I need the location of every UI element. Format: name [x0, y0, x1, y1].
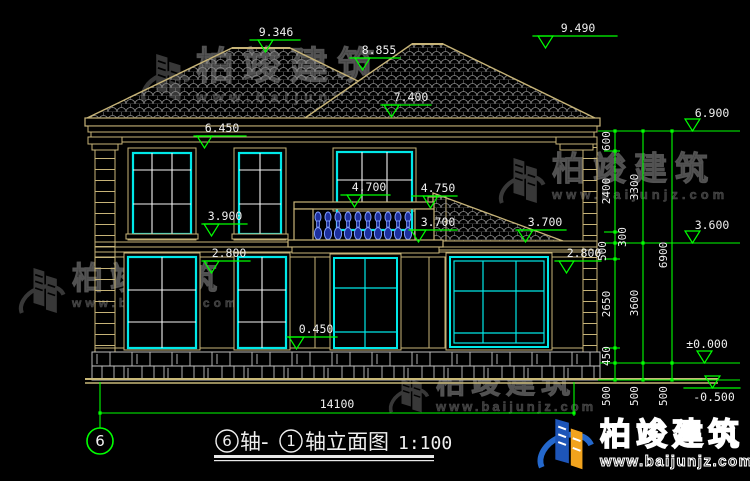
balusters — [313, 209, 415, 241]
level-label: 3.900 — [208, 209, 243, 223]
axis-bubble-number: 6 — [95, 432, 105, 450]
chain-label: 500 — [628, 386, 641, 406]
window-1f-4 — [446, 253, 552, 350]
window-1f-2 — [234, 253, 290, 350]
level-zero: ±0.000 — [686, 337, 728, 363]
level-label: 6.900 — [695, 106, 730, 120]
chain-label: 500 — [600, 386, 613, 406]
level-label: 9.346 — [259, 25, 294, 39]
drawing-title: 6 轴- 1 轴立面图 1:100 — [214, 430, 452, 461]
chain-label: 2650 — [600, 291, 613, 318]
brand-logo-url: www.baijunjz.com — [600, 453, 750, 470]
level-label: 7.400 — [394, 90, 429, 104]
level-label: 9.490 — [561, 21, 596, 35]
cad-canvas: 柏竣建筑 www.baijunjz.com 柏竣建筑 www.baijunjz.… — [0, 0, 750, 481]
title-underline-thick — [214, 455, 434, 458]
eave-cornice — [85, 118, 600, 137]
level-label: 8.855 — [362, 43, 397, 57]
chain-label: 2400 — [600, 178, 613, 205]
chain-label: 500 — [596, 241, 609, 261]
chain-label: 300 — [616, 227, 629, 247]
level-label: -0.500 — [693, 390, 735, 404]
chain-label: 600 — [600, 131, 613, 151]
corner-quoins-left — [88, 137, 122, 352]
level-label: 3.700 — [421, 215, 456, 229]
window-1f-1 — [124, 253, 200, 350]
brand-logo: 柏竣建筑 www.baijunjz.com — [534, 413, 750, 475]
balcony-rail — [294, 202, 434, 209]
title-axis-start: 6 — [222, 432, 232, 450]
level-3600: 3.600 — [685, 218, 729, 243]
axis-bubble: 6 — [87, 428, 113, 454]
brand-logo-name: 柏竣建筑 — [600, 418, 750, 452]
level-label: 3.600 — [695, 218, 730, 232]
title-axis-end: 1 — [286, 432, 296, 450]
chain-label: 3300 — [628, 174, 641, 201]
chain-label: 3600 — [628, 290, 641, 317]
title-scale: 1:100 — [398, 433, 452, 454]
chain-label: 6900 — [657, 242, 670, 269]
total-width-label: 14100 — [320, 397, 355, 411]
level-label: 0.450 — [299, 322, 334, 336]
level-label: 6.450 — [205, 121, 240, 135]
level-label: 4.750 — [421, 181, 456, 195]
level-label: ±0.000 — [686, 337, 728, 351]
level-label: 3.700 — [528, 215, 563, 229]
brand-logo-icon — [534, 413, 596, 475]
window-1f-3 — [330, 254, 401, 350]
level-label: 2.800 — [212, 246, 247, 260]
level-eave-right: 6.900 — [685, 106, 729, 131]
chain-labels: 600 2400 300 500 2650 450 3300 3600 6900… — [596, 131, 670, 406]
chain-label: 450 — [600, 346, 613, 366]
chain-label: 500 — [657, 386, 670, 406]
elevation-drawing: 9.346 8.855 9.490 7.400 6.450 4.700 4.75… — [0, 0, 750, 481]
window-2f-1 — [126, 148, 198, 240]
stone-plinth — [92, 352, 600, 380]
title-sep: 轴- — [240, 430, 269, 454]
title-underline-thin — [214, 460, 434, 461]
level-label: 4.700 — [352, 180, 387, 194]
window-2f-2 — [232, 148, 288, 240]
title-name: 轴立面图 — [305, 430, 389, 454]
level-roof-right: 9.490 — [533, 21, 617, 48]
